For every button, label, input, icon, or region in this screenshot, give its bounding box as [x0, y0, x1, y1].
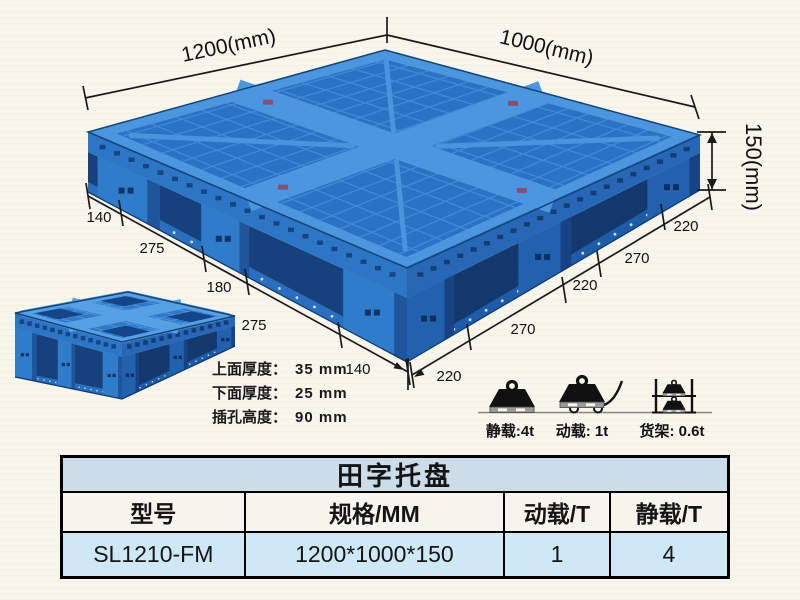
- spec-table-title: 田字托盘: [63, 458, 727, 493]
- right-chain-label-2: 220: [572, 277, 597, 294]
- rack-load-label: 货架: 0.6t: [639, 420, 704, 441]
- height-dimension-label: 150(mm): [741, 123, 766, 211]
- note-top-thickness: 上面厚度：35 mm: [212, 358, 348, 382]
- header-dynamic-load: 动载/T: [503, 493, 609, 531]
- pallet-spec-sheet: 1200(mm) 1000(mm) 150(mm): [0, 0, 800, 600]
- dynamic-load-label: 动载: 1t: [556, 420, 609, 441]
- right-chain-label-1: 270: [510, 321, 535, 338]
- note-label: 插孔高度：: [212, 409, 287, 426]
- spec-table: 田字托盘 型号 规格/MM 动载/T 静载/T SL1210-FM 1200*1…: [60, 455, 730, 579]
- static-load-label: 静载:4t: [486, 420, 534, 441]
- right-chain-label-3: 270: [624, 250, 649, 267]
- note-bottom-thickness: 下面厚度：25 mm: [212, 382, 348, 406]
- header-static-load: 静载/T: [609, 493, 727, 531]
- left-chain-label-3: 275: [241, 317, 266, 334]
- spec-table-data-row: SL1210-FM 1200*1000*150 1 4: [63, 533, 727, 576]
- cell-dynamic-load: 1: [503, 533, 609, 576]
- static-load-icon: [489, 382, 535, 413]
- note-value: 90 mm: [295, 409, 348, 426]
- note-value: 25 mm: [295, 385, 348, 402]
- left-chain-label-4: 140: [345, 361, 370, 378]
- thickness-notes: 上面厚度：35 mm 下面厚度：25 mm 插孔高度：90 mm: [212, 358, 348, 430]
- pallet-underside-image: [15, 292, 235, 399]
- note-label: 下面厚度：: [212, 385, 287, 402]
- header-spec: 规格/MM: [244, 493, 504, 531]
- cell-model: SL1210-FM: [63, 533, 244, 576]
- note-label: 上面厚度：: [212, 361, 287, 378]
- note-fork-hole-height: 插孔高度：90 mm: [212, 406, 348, 430]
- right-chain-label-0: 220: [436, 368, 461, 385]
- left-chain-label-2: 180: [206, 279, 231, 296]
- note-value: 35 mm: [295, 361, 348, 378]
- header-model: 型号: [63, 493, 244, 531]
- spec-table-header-row: 型号 规格/MM 动载/T 静载/T: [63, 493, 727, 533]
- cell-spec: 1200*1000*150: [244, 533, 504, 576]
- left-chain-label-1: 275: [139, 240, 164, 257]
- depth-dimension-label: 1000(mm): [497, 25, 595, 70]
- rack-load-icon: [652, 379, 696, 413]
- left-chain-label-0: 140: [86, 209, 111, 226]
- right-chain-label-4: 220: [673, 218, 698, 235]
- dynamic-load-icon: [559, 377, 622, 413]
- cell-static-load: 4: [609, 533, 727, 576]
